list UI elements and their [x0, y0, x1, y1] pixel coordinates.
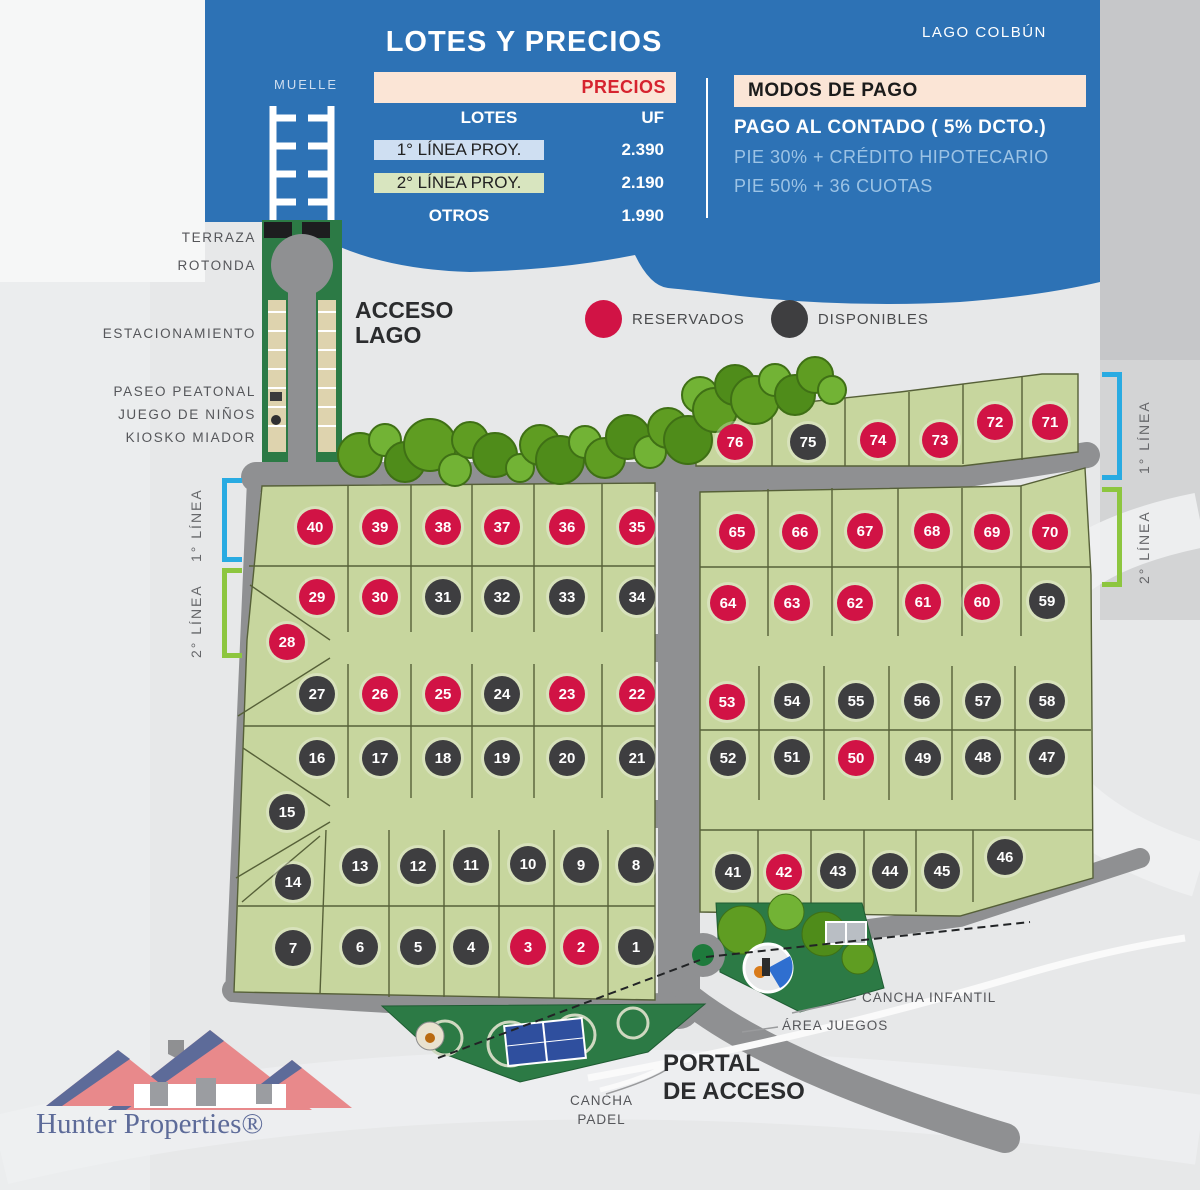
bracket-right-second-line	[1102, 487, 1122, 587]
payment-line-contado: PAGO AL CONTADO ( 5% DCTO.)	[734, 117, 1086, 139]
price-row-value: 2.390	[544, 140, 676, 160]
label-right-second-line: 2° LÍNEA	[1136, 492, 1152, 584]
col-uf: UF	[604, 108, 676, 128]
label-portal-de-acceso: PORTAL DE ACCESO	[663, 1050, 805, 1105]
price-table-columns: LOTES UF	[374, 105, 676, 131]
price-table-header: PRECIOS	[374, 72, 676, 103]
entrance-roundabout	[681, 933, 725, 977]
price-row-value: 2.190	[544, 173, 676, 193]
legend-reserved-swatch	[585, 300, 622, 338]
header-divider	[706, 78, 708, 218]
col-lotes: LOTES	[374, 108, 604, 128]
label-paseo-peatonal: PASEO PEATONAL	[80, 384, 256, 399]
price-row-others: OTROS 1.990	[374, 201, 676, 230]
access-strip	[262, 220, 342, 478]
price-row-label: OTROS	[374, 206, 544, 226]
label-left-second-line: 2° LÍNEA	[188, 568, 204, 658]
label-right-first-line: 1° LÍNEA	[1136, 382, 1152, 474]
label-area-juegos: ÁREA JUEGOS	[782, 1018, 888, 1033]
payment-box: MODOS DE PAGO PAGO AL CONTADO ( 5% DCTO.…	[734, 75, 1086, 197]
price-row-label: 1° LÍNEA PROY.	[374, 140, 544, 160]
price-row-value: 1.990	[544, 206, 676, 226]
label-muelle: MUELLE	[274, 77, 338, 92]
price-row-second-line: 2° LÍNEA PROY. 2.190	[374, 168, 676, 197]
legend: RESERVADOS DISPONIBLES	[585, 300, 945, 338]
site-plan-page: { "header": { "title": "LOTES Y PRECIOS"…	[0, 0, 1200, 1190]
bracket-left-second-line	[222, 568, 242, 658]
payment-title: MODOS DE PAGO	[734, 75, 1086, 107]
lake-label: LAGO COLBÚN	[922, 24, 1047, 41]
price-table: PRECIOS LOTES UF 1° LÍNEA PROY. 2.390 2°…	[374, 72, 676, 230]
bracket-left-first-line	[222, 478, 242, 562]
price-row-label: 2° LÍNEA PROY.	[374, 173, 544, 193]
label-rotonda: ROTONDA	[100, 258, 256, 273]
price-row-first-line: 1° LÍNEA PROY. 2.390	[374, 135, 676, 164]
label-cancha-padel: CANCHA PADEL	[570, 1092, 633, 1130]
payment-line-pie50: PIE 50% + 36 CUOTAS	[734, 176, 1086, 197]
label-terraza: TERRAZA	[100, 230, 256, 245]
legend-reserved-label: RESERVADOS	[632, 311, 745, 328]
label-acceso-lago: ACCESO LAGO	[355, 298, 453, 349]
label-left-first-line: 1° LÍNEA	[188, 478, 204, 562]
bracket-right-first-line	[1102, 372, 1122, 480]
padel-court-icon	[504, 1018, 586, 1066]
tennis-court-icon	[826, 922, 866, 944]
label-estacionamiento: ESTACIONAMIENTO	[80, 326, 256, 341]
label-cancha-infantil: CANCHA INFANTIL	[862, 990, 996, 1005]
brand-logo-text: Hunter Properties®	[36, 1108, 263, 1141]
page-title: LOTES Y PRECIOS	[376, 26, 672, 59]
payment-line-pie30: PIE 30% + CRÉDITO HIPOTECARIO	[734, 147, 1086, 168]
label-kiosko: KIOSKO MIADOR	[80, 430, 256, 445]
label-juego-ninos: JUEGO DE NIÑOS	[80, 407, 256, 422]
legend-available-label: DISPONIBLES	[818, 311, 929, 328]
legend-available-swatch	[771, 300, 808, 338]
